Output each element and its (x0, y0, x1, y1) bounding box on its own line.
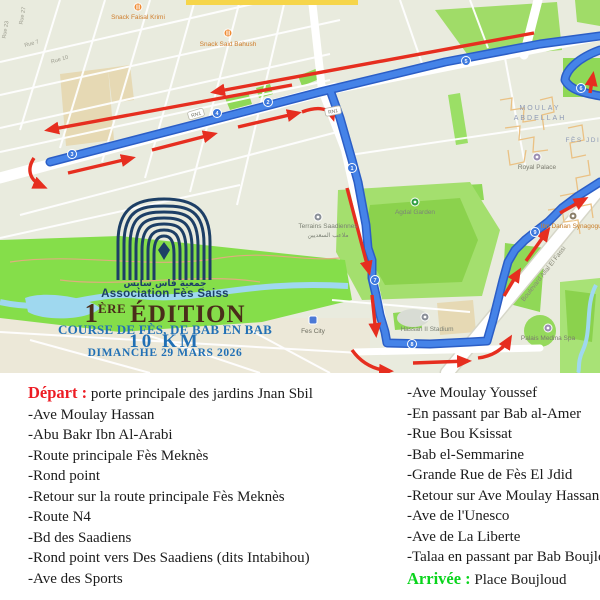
route-step: -Talaa en passant par Bab Boujloud (407, 547, 597, 568)
svg-text:2: 2 (266, 100, 269, 106)
svg-text:1: 1 (350, 166, 353, 172)
svg-text:Hassan II Stadium: Hassan II Stadium (400, 326, 453, 333)
svg-text:ملاعب السعديين: ملاعب السعديين (307, 232, 348, 239)
restaurant-icon (134, 3, 142, 11)
route-step: -Ave de La Liberte (407, 527, 597, 548)
route-step: -Ave des Sports (28, 569, 400, 590)
svg-text:Royal Palace: Royal Palace (518, 164, 557, 171)
svg-text:6: 6 (579, 86, 582, 92)
route-step: -Retour sur Ave Moulay Hassan (407, 486, 597, 507)
svg-text:Agdal Garden: Agdal Garden (395, 209, 435, 216)
route-step: -Rond point vers Des Saadiens (dits Inta… (28, 548, 400, 569)
route-step: -Ave de l'Unesco (407, 506, 597, 527)
svg-text:Palais Medina Spa: Palais Medina Spa (521, 335, 576, 342)
svg-text:MOULAY: MOULAY (519, 105, 560, 112)
route-step: -Grande Rue de Fès El Jdid (407, 465, 597, 486)
svg-text:Snack Faisal Krimi: Snack Faisal Krimi (111, 14, 165, 21)
route-step: -Route N4 (28, 507, 400, 528)
route-step: -Bd des Saadiens (28, 528, 400, 549)
svg-text:8: 8 (410, 342, 413, 348)
route-step: -Rue Bou Ksissat (407, 424, 597, 445)
svg-text:9: 9 (533, 230, 536, 236)
depart-label: Départ : (28, 383, 87, 402)
svg-text:Ibn Danan Synagogue: Ibn Danan Synagogue (541, 223, 600, 230)
svg-text:Snack Said Bahush: Snack Said Bahush (200, 41, 257, 48)
logo-center-ornament (158, 242, 170, 260)
arch-logo-icon (96, 186, 232, 282)
svg-text:Terrains Saadiennes: Terrains Saadiennes (298, 223, 358, 230)
route-step: -Bab el-Semmarine (407, 445, 597, 466)
route-step: -Ave Moulay Youssef (407, 383, 597, 404)
depart-value: porte principale des jardins Jnan Sbil (87, 386, 313, 402)
poi-icon (314, 213, 322, 221)
svg-text:3: 3 (70, 152, 73, 158)
svg-text:7: 7 (373, 278, 376, 284)
yellow-road (186, 0, 358, 5)
association-logo (96, 186, 232, 282)
arrivee-row: Arrivée : Place Boujloud (407, 568, 597, 591)
arrivee-value: Place Boujloud (471, 572, 567, 588)
route-step: -Abu Bakr Ibn Al-Arabi (28, 425, 400, 446)
palace-icon (533, 153, 541, 161)
route-step: -Route principale Fès Meknès (28, 446, 400, 467)
svg-text:FÈS JDID: FÈS JDID (566, 135, 600, 144)
spa-icon (544, 324, 552, 332)
restaurant-icon (224, 29, 232, 37)
route-step: -Retour sur la route principale Fès Mekn… (28, 487, 400, 508)
garden-icon (411, 198, 419, 206)
route-step: -En passant par Bab al-Amer (407, 404, 597, 425)
route-step: -Rond point (28, 466, 400, 487)
route-list-left: Départ : porte principale des jardins Jn… (28, 383, 400, 589)
depart-row: Départ : porte principale des jardins Jn… (28, 383, 400, 405)
route-list-right: -Ave Moulay Youssef -En passant par Bab … (407, 383, 597, 590)
svg-text:ABDELLAH: ABDELLAH (514, 115, 567, 122)
stadium-icon (421, 313, 429, 321)
route-step: -Ave Moulay Hassan (28, 405, 400, 426)
arrivee-label: Arrivée : (407, 569, 471, 588)
event-date: DIMANCHE 29 MARS 2026 (0, 347, 330, 359)
race-flyer: 1 2 3 4 5 6 7 8 9 RN1 RN1 Snack Faisal K… (0, 0, 600, 600)
synagogue-icon (569, 212, 577, 220)
svg-text:5: 5 (464, 59, 467, 65)
